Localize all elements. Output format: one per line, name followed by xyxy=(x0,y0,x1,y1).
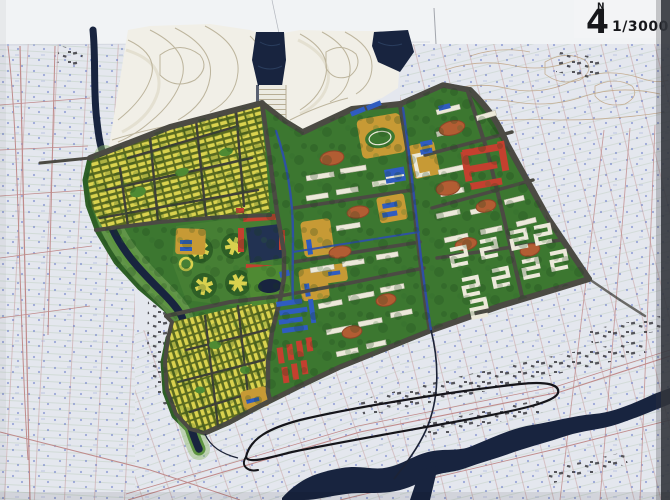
north-arrow-icon: 4 xyxy=(586,2,609,41)
titleblock: N 4 1/3000 xyxy=(574,0,669,41)
master-plan-photo: N 4 1/3000 xyxy=(0,0,670,500)
master-plan-svg: N 4 1/3000 xyxy=(0,0,670,500)
